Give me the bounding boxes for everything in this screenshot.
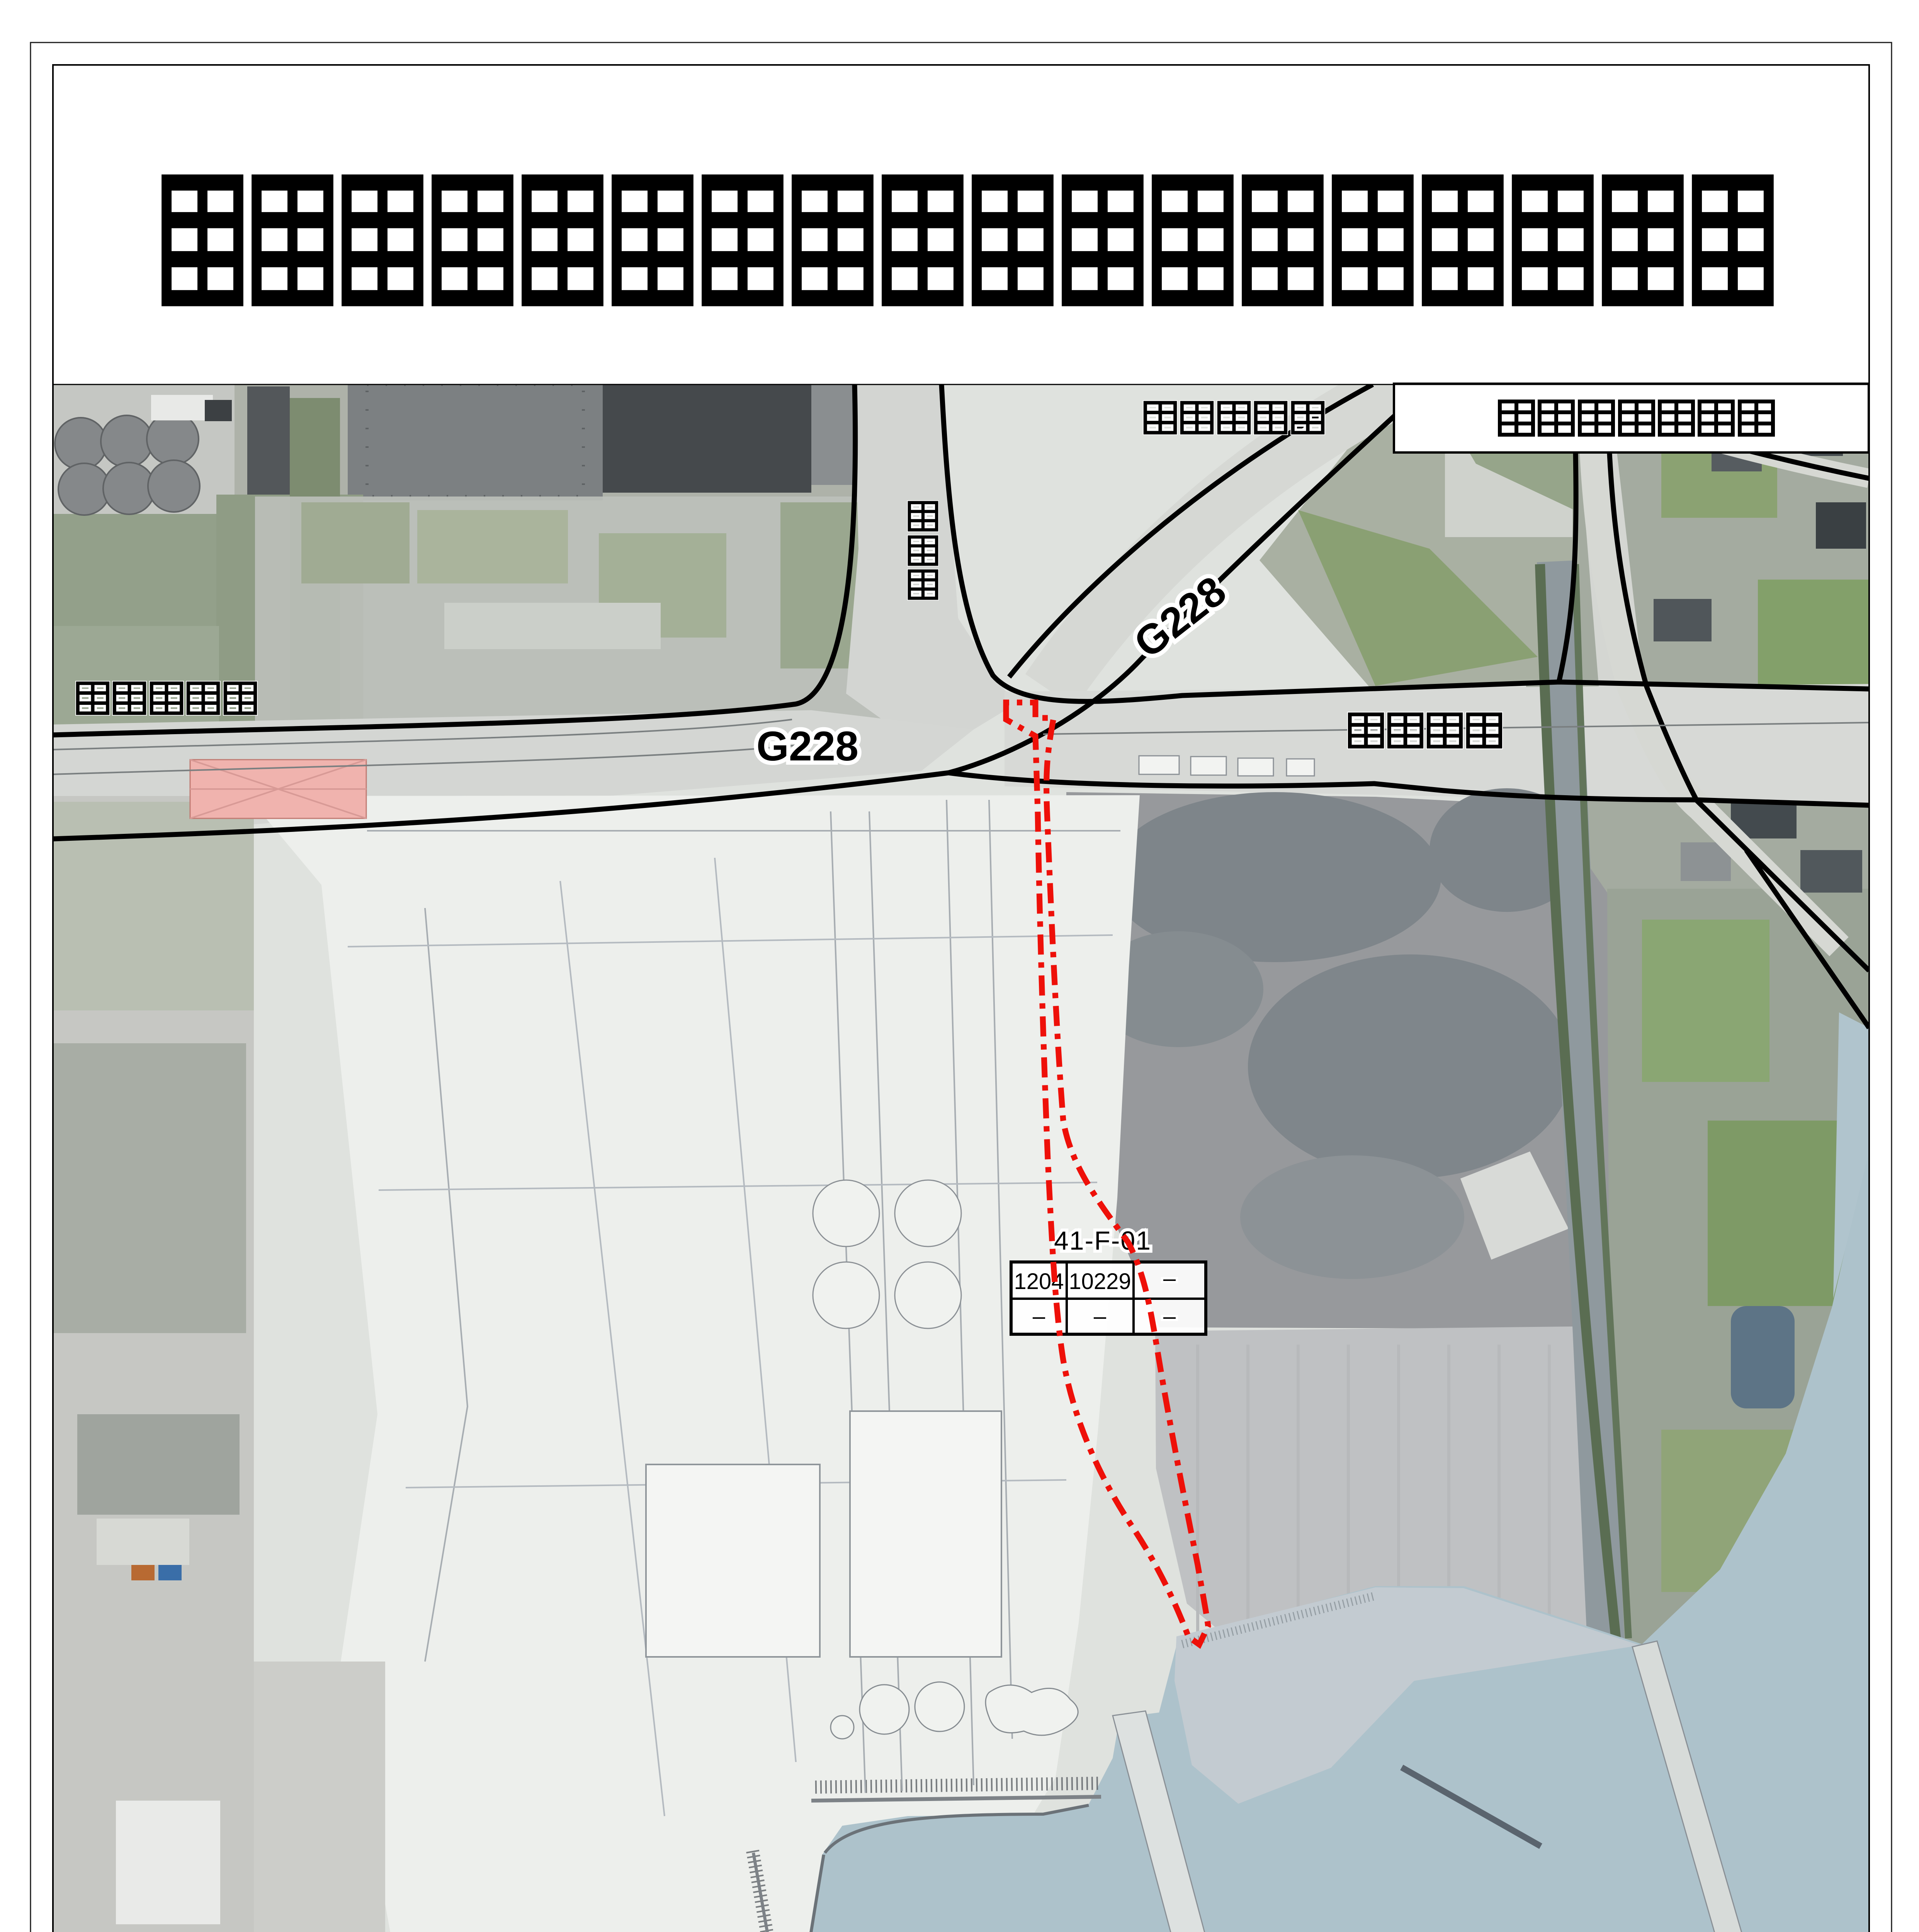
svg-text:–: –	[1033, 1304, 1045, 1329]
svg-text:10229: 10229	[1069, 1269, 1131, 1294]
svg-text:–: –	[1163, 1304, 1176, 1329]
svg-text:–: –	[1163, 1266, 1176, 1291]
svg-text:41-F-01: 41-F-01	[1054, 1226, 1151, 1255]
svg-text:–: –	[1094, 1304, 1107, 1329]
svg-text:G228: G228	[756, 723, 858, 769]
